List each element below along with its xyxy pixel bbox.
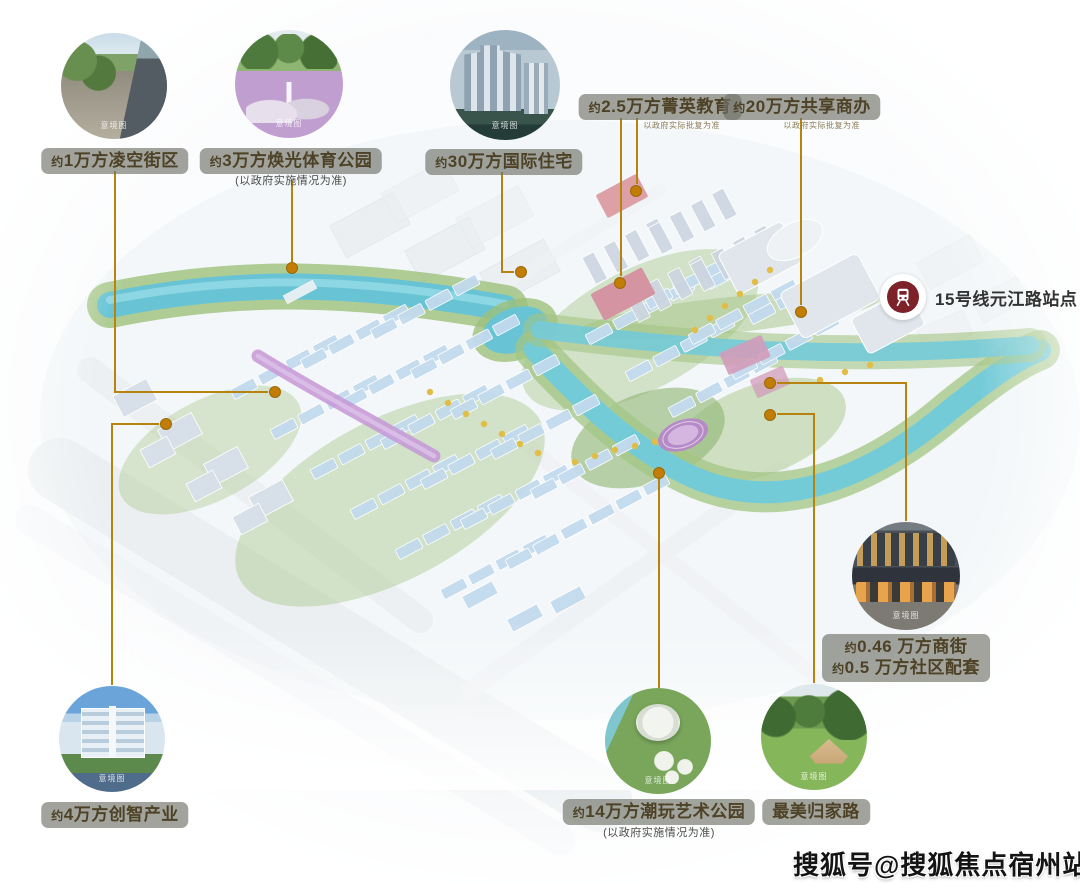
photo-intl-residence: 意境图 <box>450 30 560 140</box>
label-shared-office: 约20万方共享商办 <box>723 94 880 120</box>
note-sports-park: (以政府实施情况为准) <box>235 172 347 188</box>
photo-shop-street: 意境图 <box>852 522 960 630</box>
label-lingkong-street: 约1万方凌空街区 <box>41 148 188 174</box>
photo-caption: 意境图 <box>450 120 560 131</box>
photo-caption: 意境图 <box>761 771 867 782</box>
photo-caption: 意境图 <box>852 610 960 621</box>
photo-art-park: 意境图 <box>605 688 711 794</box>
photo-smart-industry: 意境图 <box>59 686 165 792</box>
label-art-park: 约14万方潮玩艺术公园 <box>563 799 755 825</box>
photo-lingkong-street: 意境图 <box>61 33 167 139</box>
photo-caption: 意境图 <box>61 120 167 131</box>
photo-sports-park: 意境图 <box>235 30 343 138</box>
metro-station-label: 15号线元江路站点 <box>935 285 1077 310</box>
photo-caption: 意境图 <box>235 118 343 129</box>
label-shop-street-line2: 约0.5 万方社区配套 <box>832 657 980 678</box>
watermark-text: 搜狐号@搜狐焦点宿州站 <box>793 845 1080 882</box>
label-shop-street: 约0.46 万方商街 约0.5 万方社区配套 <box>822 634 990 682</box>
photo-caption: 意境图 <box>59 773 165 784</box>
label-home-road: 最美归家路 <box>762 799 870 825</box>
note-elite-education: 以政府实际批复为准 <box>644 120 721 131</box>
label-shop-street-line1: 约0.46 万方商街 <box>832 636 980 657</box>
train-icon <box>880 274 926 320</box>
photo-caption: 意境图 <box>605 775 711 786</box>
label-sports-park: 约3万方焕光体育公园 <box>200 148 382 174</box>
label-intl-residence: 约30万方国际住宅 <box>425 149 582 175</box>
master-plan-poster: 意境图 意境图 意境图 意境图 意境图 意境图 意境图 约1万方凌空街区 约3万… <box>0 0 1080 884</box>
label-smart-industry: 约4万方创智产业 <box>41 802 188 828</box>
note-shared-office: 以政府实际批复为准 <box>784 120 861 131</box>
metro-station-badge: 15号线元江路站点 <box>880 274 1077 320</box>
photo-home-road: 意境图 <box>761 684 867 790</box>
label-elite-education: 约2.5万方菁英教育 <box>579 94 742 120</box>
note-art-park: (以政府实施情况为准) <box>603 824 715 840</box>
